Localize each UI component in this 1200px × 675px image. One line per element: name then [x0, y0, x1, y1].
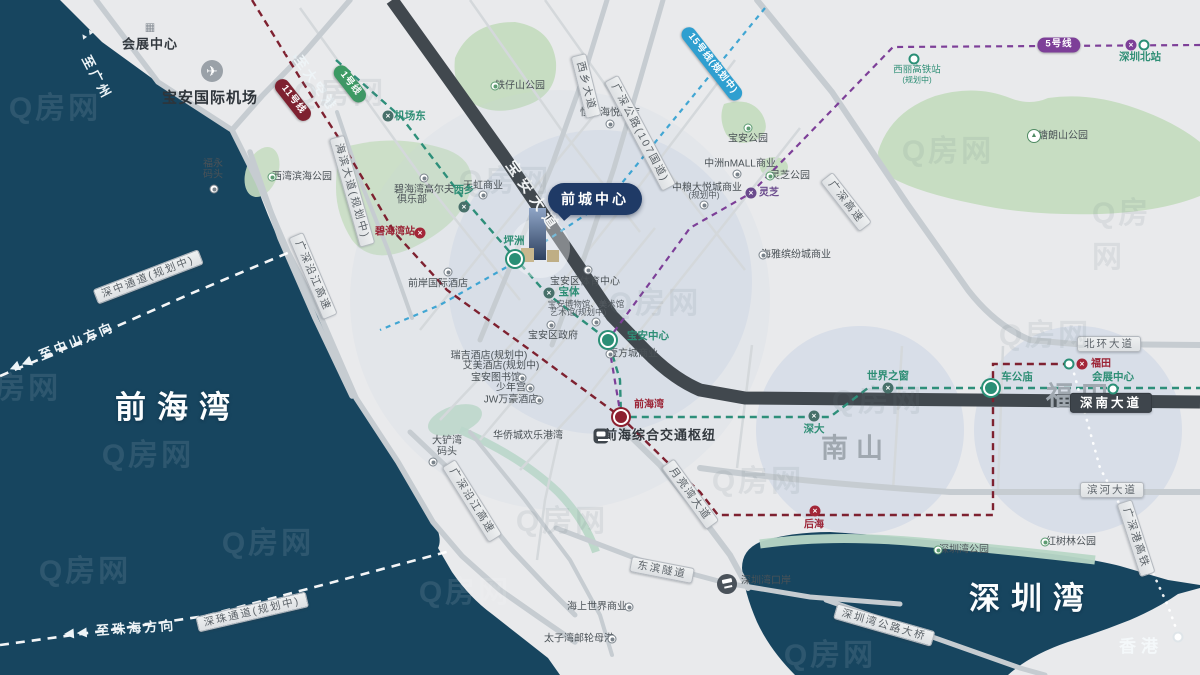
map-label: 宝安国际机场 — [162, 89, 258, 106]
road-label: 广深沿江高速 — [442, 459, 503, 543]
map-label: 前岸国际酒店 — [408, 278, 468, 290]
station-label: 世界之窗 — [867, 370, 909, 382]
station-marker — [1139, 40, 1150, 51]
hotel-icon — [444, 268, 453, 277]
metro-line-badge: 5号线 — [1037, 38, 1080, 53]
airport-icon: ✈ — [201, 60, 223, 82]
youth-palace-icon — [526, 384, 535, 393]
mountain-icon: ▲ — [1027, 129, 1041, 143]
map-label: 宝安区政府 — [528, 330, 578, 342]
watermark: Q房网 — [832, 376, 924, 420]
map-label: 宝安公园 — [728, 133, 768, 145]
station-label: 西乡 — [454, 184, 475, 196]
library-icon — [518, 374, 527, 383]
map-label: (规划中) — [902, 75, 931, 84]
station-marker — [600, 332, 616, 348]
station-marker — [909, 54, 920, 65]
watermark: Q房网 — [784, 630, 876, 674]
map-label: (规划中) — [688, 191, 719, 201]
map-label: 码头 — [203, 169, 223, 181]
road-label: 东滨隧道 — [629, 556, 695, 584]
map-label: 前海综合交通枢纽 — [604, 429, 716, 444]
road-label: 深南大道 — [1070, 393, 1152, 413]
map-label: ◀◀ 至珠海方向 — [63, 619, 176, 642]
map-label: 海雅缤纷城商业 — [761, 249, 831, 261]
map-label: 西湾滨海公园 — [272, 171, 332, 183]
ferry-pier-icon — [429, 458, 438, 467]
map-label: ◀◀ 至中山方向 — [7, 320, 117, 376]
station-marker: × — [809, 411, 820, 422]
mall-icon — [479, 191, 488, 200]
station-marker: × — [810, 506, 821, 517]
park-icon — [491, 82, 500, 91]
station-marker — [1108, 384, 1119, 395]
map-label: 红树林公园 — [1046, 536, 1096, 548]
station-marker: × — [459, 202, 470, 213]
map-label: 会展中心 — [122, 38, 178, 53]
map-label: 深圳湾口岸 — [741, 575, 791, 587]
map-label: 塘朗山公园 — [1038, 130, 1088, 142]
map-label: 华侨城欢乐港湾 — [493, 430, 563, 442]
cruise-port-icon — [608, 635, 617, 644]
park-icon — [744, 124, 753, 133]
station-label: 深大 — [804, 423, 825, 435]
road-label: 广深港高铁 — [1117, 499, 1156, 577]
map-label: 码头 — [437, 446, 457, 458]
road-label: 广深高速 — [820, 172, 872, 232]
metro-line-badge: 15号线(规划中) — [679, 24, 746, 104]
project-name-badge: 前城中心 — [548, 183, 642, 215]
station-label: 会展中心 — [1092, 371, 1134, 383]
road-label: 深中通道(规划中) — [93, 249, 204, 304]
station-marker — [1064, 359, 1075, 370]
station-label: 碧海湾站 — [375, 226, 415, 238]
watermark: Q房网 — [902, 126, 994, 170]
watermark: Q房网 — [516, 496, 608, 540]
station-marker: × — [883, 383, 894, 394]
road-label: 海滨大道(规划中) — [329, 135, 375, 248]
map-label: 灵芝公园 — [770, 170, 810, 182]
park-icon — [934, 546, 943, 555]
map-label: 艾美酒店(规划中) — [463, 360, 540, 372]
station-label: 坪洲 — [504, 235, 525, 247]
map-label: 太子湾邮轮母港 — [544, 633, 614, 645]
hotel-icon — [606, 120, 615, 129]
station-marker: × — [1077, 359, 1088, 370]
road-label: 深珠通道(规划中) — [195, 592, 308, 633]
station-label: 灵芝 — [759, 187, 779, 199]
watermark: Q房网 — [1092, 188, 1164, 276]
watermark: Q房网 — [712, 456, 804, 500]
building-icon: ▦ — [145, 23, 155, 34]
mall-icon — [759, 251, 768, 260]
station-marker: × — [544, 288, 555, 299]
government-icon — [547, 321, 556, 330]
station-label: 宝安中心 — [627, 330, 669, 342]
watermark: Q房网 — [419, 567, 511, 611]
road-label: 北环大道 — [1077, 336, 1141, 352]
station-label: 后海 — [804, 519, 824, 531]
park-icon — [268, 173, 277, 182]
watermark: Q房网 — [102, 430, 194, 474]
station-marker: × — [383, 111, 394, 122]
station-marker — [1173, 632, 1184, 643]
station-marker: × — [1126, 40, 1137, 51]
station-label: 前海湾 — [634, 399, 664, 411]
road-label: 月亮湾大道 — [661, 458, 719, 529]
hotel-icon — [535, 396, 544, 405]
map-label: 福永 — [203, 158, 223, 170]
station-marker — [507, 251, 523, 267]
stadium-icon — [584, 266, 593, 275]
map-label: 少年宫 — [496, 382, 526, 394]
station-marker — [983, 380, 999, 396]
train-hub-icon — [594, 429, 609, 444]
road-label: 广深沿江高速 — [288, 232, 338, 320]
road-label: 滨河大道 — [1080, 482, 1144, 498]
map-label: 前海湾 — [115, 390, 241, 426]
station-label: 机场东 — [394, 110, 426, 122]
map-label: 海上世界商业 — [567, 601, 627, 613]
park-icon — [1041, 538, 1050, 547]
station-label: 车公庙 — [1001, 371, 1033, 383]
road-label: 西乡大道 — [570, 53, 601, 119]
map-label: 中洲nMALL商业 — [704, 158, 776, 170]
map-label: 俱乐部 — [397, 194, 427, 206]
map-label: 香港 — [1119, 637, 1163, 657]
station-marker: × — [746, 188, 757, 199]
mall-icon — [625, 603, 634, 612]
map-label: 深圳湾公园 — [939, 544, 989, 556]
map-label: 南山 — [821, 433, 891, 464]
map-label: 艺术馆(规划中) — [550, 308, 607, 318]
map-label: 铁仔山公园 — [495, 80, 545, 92]
label-overlay: 会展中心宝安国际机场福永码头西湾滨海公园铁仔山公园恒丰海悦酒店宝安公园塘朗山公园… — [0, 0, 1200, 675]
station-label: 深圳北站 — [1119, 51, 1161, 63]
ferry-pier-icon — [210, 185, 219, 194]
map-label: JW万豪酒店 — [484, 394, 538, 406]
park-icon — [766, 172, 775, 181]
map-label: 深圳湾 — [969, 581, 1095, 617]
mall-icon — [700, 201, 709, 210]
watermark: Q房网 — [222, 518, 314, 562]
watermark: Q房网 — [9, 83, 101, 127]
border-port-icon — [717, 574, 737, 594]
station-marker — [613, 409, 629, 425]
station-label: 福田 — [1091, 358, 1111, 370]
map-canvas: 会展中心宝安国际机场福永码头西湾滨海公园铁仔山公园恒丰海悦酒店宝安公园塘朗山公园… — [0, 0, 1200, 675]
station-marker: × — [415, 228, 426, 239]
road-label: 广深公路(107国道) — [604, 75, 676, 192]
golf-icon — [420, 174, 429, 183]
mall-icon — [606, 350, 615, 359]
map-label: 至广州 — [78, 53, 114, 102]
map-label: ▲▲ — [78, 26, 96, 43]
map-label: 大铲湾 — [432, 435, 462, 447]
museum-icon — [592, 318, 601, 327]
map-label: 壹方城商业 — [608, 348, 658, 360]
station-label: 宝体 — [559, 286, 580, 298]
road-label: 深圳湾公路大桥 — [833, 603, 935, 646]
watermark: Q房网 — [39, 546, 131, 590]
mall-icon — [733, 170, 742, 179]
